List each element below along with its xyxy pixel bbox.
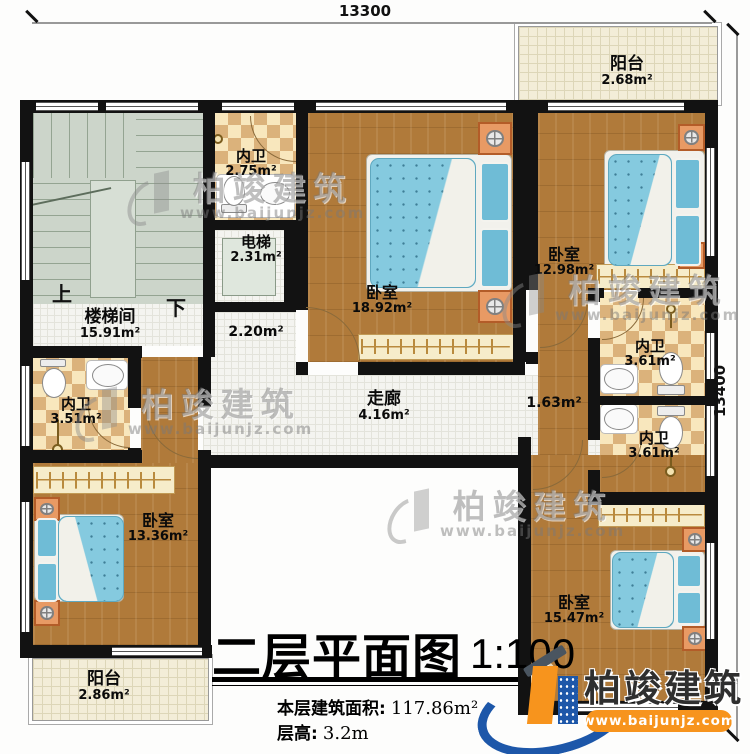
window: [316, 102, 506, 111]
window: [706, 543, 715, 639]
wall: [20, 450, 142, 463]
room-name: 内卫: [639, 430, 669, 447]
nightstand: [478, 290, 512, 323]
room-label-hall-right: 1.63m²: [526, 396, 581, 412]
room-label-stairwell: 楼梯间 15.91m²: [80, 308, 140, 342]
room-name: 卧室: [366, 284, 398, 302]
toilet: [42, 368, 66, 398]
wall: [296, 230, 308, 310]
window: [106, 102, 198, 111]
shower-head: [665, 466, 676, 477]
room-name: 阳台: [610, 55, 644, 74]
wall: [588, 492, 718, 505]
room-area: 2.75m²: [225, 165, 276, 180]
window: [222, 102, 294, 111]
room-area: 2.68m²: [601, 74, 652, 89]
room-name: 卧室: [548, 246, 580, 264]
floor-area-line: 本层建筑面积: 117.86m²: [277, 694, 478, 719]
nightstand-knob: [688, 632, 702, 645]
room-area: 15.47m²: [544, 612, 604, 627]
room-label-bath-left: 内卫 3.51m²: [50, 396, 101, 427]
room-label-bedroom-bottomleft: 卧室 13.36m²: [128, 512, 188, 544]
room-area: 1.63m²: [526, 396, 581, 412]
logo-brand-text: 柏竣建筑: [584, 658, 744, 712]
room-label-elevator: 电梯 2.31m²: [230, 234, 281, 265]
wall: [128, 346, 141, 408]
window: [21, 162, 30, 280]
dimension-right-value: 13400: [711, 361, 729, 421]
room-name: 内卫: [635, 338, 665, 355]
toilet-tank: [657, 406, 685, 416]
room-area: 18.92m²: [352, 302, 412, 317]
nightstand: [478, 122, 512, 155]
nightstand-knob: [486, 298, 505, 316]
sink: [604, 368, 634, 390]
dimension-line-right: [736, 34, 738, 740]
room-label-balcony-bottom: 阳台 2.86m²: [78, 670, 129, 704]
dimension-tick: [703, 10, 716, 23]
room-label-balcony-top: 阳台 2.68m²: [601, 55, 652, 89]
pillow: [480, 162, 510, 222]
wall: [513, 112, 526, 362]
wardrobe: [598, 503, 705, 527]
room-area: 3.61m²: [624, 355, 675, 370]
toilet-tank: [40, 359, 66, 367]
wall: [296, 362, 308, 375]
sink: [604, 408, 634, 430]
wardrobe: [33, 466, 175, 494]
sink: [92, 364, 124, 387]
floor-area-value: 117.86m²: [391, 698, 478, 719]
shower-head: [666, 304, 676, 314]
room-area: 2.20m²: [228, 325, 283, 341]
nightstand-knob: [684, 130, 698, 144]
room-area: 12.98m²: [534, 264, 594, 279]
room-name: 楼梯间: [85, 308, 136, 327]
room-name: 内卫: [236, 148, 266, 165]
toilet: [223, 176, 245, 206]
stair-down-label: 下: [166, 292, 186, 321]
window: [21, 502, 30, 632]
wall: [198, 450, 211, 658]
room-label-bath-upper: 内卫 3.61m²: [624, 338, 675, 369]
room-area: 15.91m²: [80, 327, 140, 342]
bed-mattress: [608, 154, 672, 266]
logo-building-blue: [558, 676, 578, 724]
room-label-bath-lower: 内卫 3.61m²: [628, 430, 679, 461]
wardrobe: [358, 334, 514, 360]
sliding-door: [112, 647, 202, 656]
room-area: 2.31m²: [230, 251, 281, 266]
stair-treads: [136, 112, 203, 296]
brand-logo: 柏竣建筑 www.baijunjz.com: [472, 652, 734, 752]
sink: [260, 182, 290, 205]
toilet-tank: [657, 385, 685, 395]
nightstand: [34, 600, 60, 626]
pillow: [36, 518, 58, 558]
window: [36, 102, 98, 111]
room-name: 卧室: [558, 594, 590, 612]
bed-sheet: [371, 159, 475, 287]
room-label-bedroom-topright: 卧室 12.98m²: [534, 246, 594, 278]
room-area: 2.86m²: [78, 689, 129, 704]
floor-area-label: 本层建筑面积:: [277, 699, 386, 719]
floor-height-line: 层高: 3.2m: [277, 719, 369, 744]
hall-small-floor: [203, 312, 296, 376]
wall: [638, 288, 705, 298]
wall: [284, 222, 296, 312]
watermark-logo-icon: [390, 488, 432, 542]
room-name: 走廊: [367, 390, 401, 409]
stair-up-label: 上: [52, 278, 72, 307]
room-area: 4.16m²: [358, 409, 409, 424]
bed-sheet: [59, 517, 123, 601]
room-area: 3.51m²: [50, 413, 101, 428]
dimension-tick: [25, 10, 38, 23]
wall: [203, 302, 296, 312]
wall: [296, 112, 308, 230]
pillow: [676, 591, 702, 625]
wall: [588, 288, 600, 302]
room-label-hall-small: 2.20m²: [228, 325, 283, 341]
pillow: [36, 562, 58, 602]
nightstand: [678, 124, 705, 151]
room-name: 内卫: [61, 396, 91, 413]
bed-mattress: [370, 158, 476, 288]
floor-height-label: 层高:: [277, 724, 318, 744]
wall: [198, 357, 211, 407]
room-area: 3.61m²: [628, 447, 679, 462]
pillow: [674, 158, 701, 210]
bed-sheet: [609, 155, 671, 265]
sliding-door: [548, 102, 684, 111]
room-label-corridor: 走廊 4.16m²: [358, 390, 409, 424]
floor-plan: 13300 13400: [0, 0, 750, 754]
wall: [526, 352, 538, 364]
stair-landing: [90, 180, 136, 298]
room-area: 13.36m²: [128, 530, 188, 545]
nightstand-knob: [486, 130, 505, 148]
floor-height-value: 3.2m: [323, 723, 369, 744]
pillow: [480, 228, 510, 288]
bed-sheet: [613, 553, 673, 627]
bed-mattress: [612, 552, 674, 628]
nightstand-knob: [40, 606, 54, 620]
dimension-tick: [726, 23, 739, 36]
room-label-bedroom-center: 卧室 18.92m²: [352, 284, 412, 316]
window: [21, 366, 30, 446]
dimension-line-top: [32, 22, 712, 24]
pillow: [676, 554, 702, 588]
wall: [358, 362, 525, 375]
wall: [203, 112, 215, 357]
nightstand-knob: [40, 503, 54, 515]
room-name: 阳台: [87, 670, 121, 689]
pillow: [674, 214, 701, 266]
room-label-bath-top: 内卫 2.75m²: [225, 148, 276, 179]
nightstand-knob: [688, 533, 702, 546]
shower-arm: [670, 314, 672, 328]
room-name: 电梯: [241, 234, 271, 251]
bed-mattress: [58, 516, 124, 602]
dimension-top-value: 13300: [330, 2, 400, 20]
wall: [588, 338, 600, 440]
wall: [203, 455, 530, 468]
room-name: 卧室: [142, 512, 174, 530]
window: [706, 148, 715, 256]
room-label-bedroom-bottomright: 卧室 15.47m²: [544, 594, 604, 626]
wall: [20, 346, 142, 358]
stair-treads: [33, 112, 136, 178]
logo-url: www.baijunjz.com: [586, 710, 732, 732]
wall: [596, 396, 705, 405]
